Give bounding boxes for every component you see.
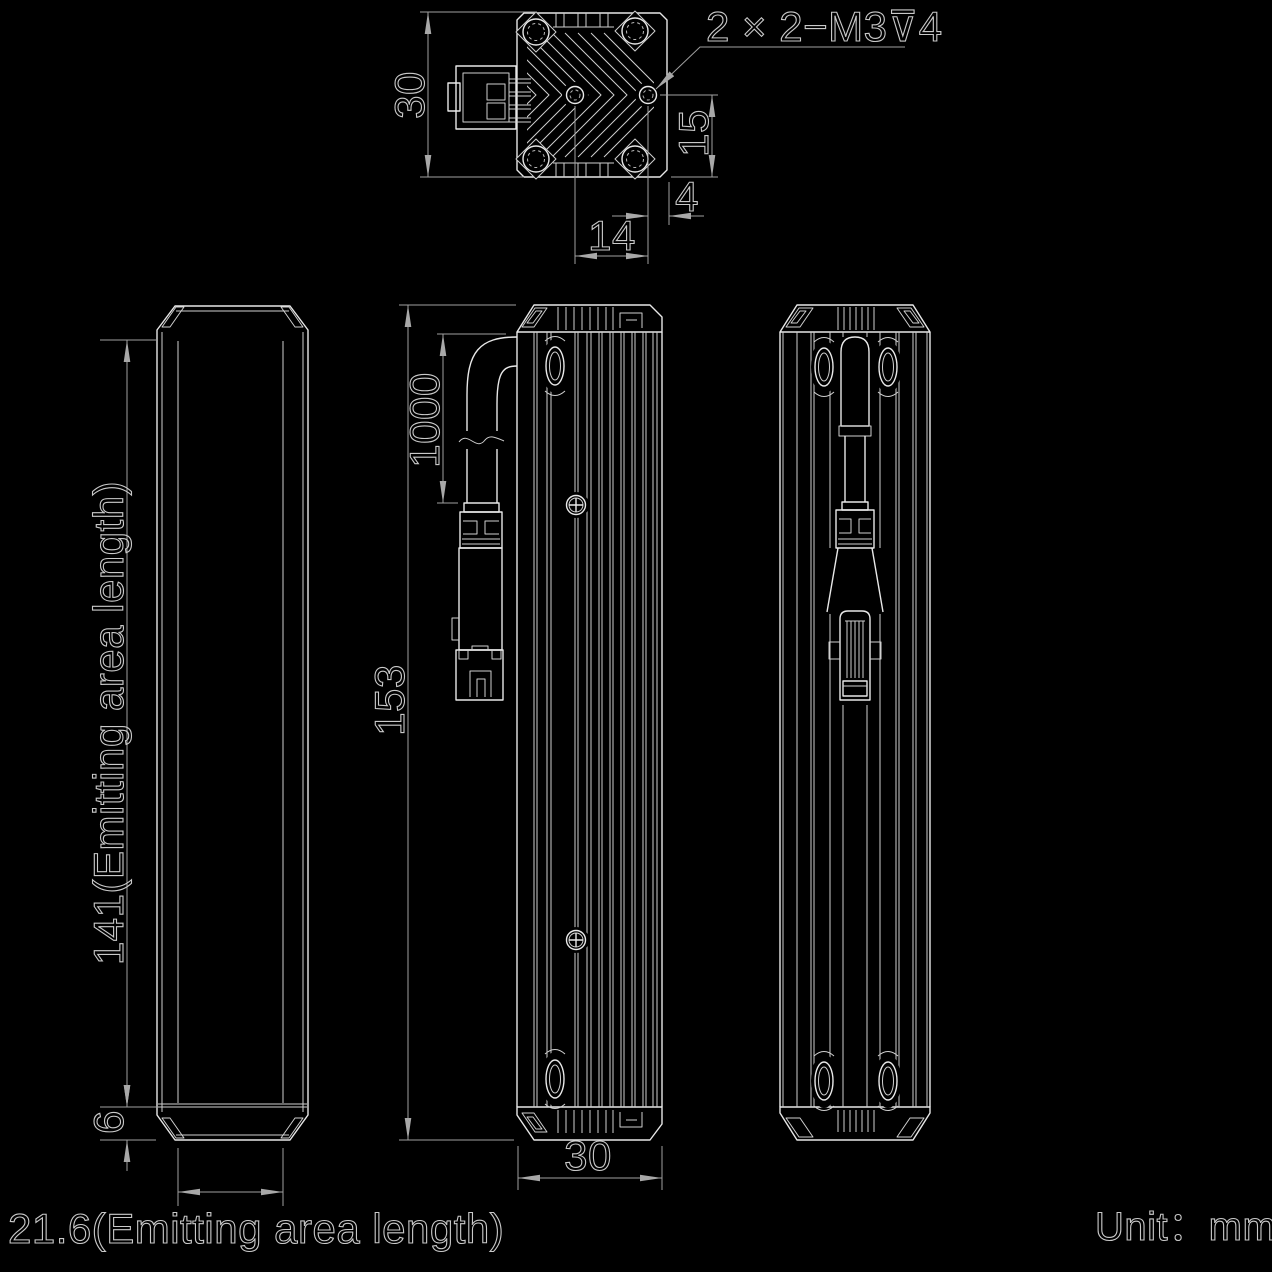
dim-text-emitting-width: 21.6(Emitting area length)	[8, 1205, 504, 1252]
dim-text-hole-spacing: 14	[588, 212, 636, 259]
dim-text-body-length: 153	[366, 664, 413, 736]
dim-emitting-length: 141(Emitting area length)	[85, 340, 156, 1140]
side-slot-hole-top	[542, 337, 568, 396]
dimension-drawing-canvas: 30 15 4 14 2 × 2−M3⊽4	[0, 0, 1272, 1272]
back-top-cap	[780, 305, 930, 332]
side-slot-hole-bottom	[542, 1050, 568, 1109]
dim-text-body-width: 30	[564, 1132, 612, 1179]
dim-text-emitting-length: 141(Emitting area length)	[85, 481, 132, 965]
bottom-edge-fins	[553, 163, 614, 177]
front-chamfer-tr	[281, 307, 303, 327]
side-top-cap-fins	[558, 307, 613, 330]
thread-note-text: 2 × 2−M3⊽4	[706, 3, 943, 50]
emitting-window-edges	[178, 341, 283, 1103]
cable-break-symbol	[459, 437, 504, 444]
thread-note: 2 × 2−M3⊽4	[656, 3, 943, 89]
back-top-cap-fins	[838, 307, 874, 330]
dim-top-height: 30	[386, 12, 537, 177]
dim-cable-length: 1000	[401, 334, 506, 503]
side-bottom-cap-fins	[558, 1110, 613, 1133]
front-body-outline	[157, 306, 308, 1140]
back-bottom-cap	[780, 1107, 930, 1140]
dim-hole-spacing: 14	[575, 106, 648, 264]
back-cable-assembly	[827, 337, 883, 705]
back-top-cap-slot-left	[786, 308, 813, 327]
front-endcap-line	[158, 1104, 307, 1107]
cable	[459, 337, 517, 503]
side-screw-bottom	[563, 927, 589, 953]
top-edge-fins	[553, 13, 614, 27]
side-screw-top	[563, 492, 589, 518]
dim-end-margin: 6	[85, 1076, 132, 1171]
side-extrusion-fins	[534, 332, 657, 1107]
front-edge-inner-lines	[162, 311, 303, 1135]
dim-text-end-margin: 6	[85, 1110, 132, 1134]
unit-note: Unit：mm	[1095, 1205, 1272, 1249]
back-bottom-cap-fins	[838, 1110, 874, 1132]
top-view-connector	[448, 66, 531, 129]
technical-drawing-page: 30 15 4 14 2 × 2−M3⊽4	[0, 0, 1272, 1272]
side-body-edges	[517, 332, 662, 1107]
cable-connector	[452, 503, 503, 700]
dim-text-hole-offset: 15	[670, 109, 717, 157]
back-bottom-cap-slots	[786, 1118, 924, 1137]
view-side: 1000 153 30	[366, 305, 662, 1190]
view-back	[780, 305, 930, 1140]
dim-hole-offset: 15	[660, 95, 718, 177]
dim-text-top-height: 30	[386, 71, 433, 119]
view-top-section: 30 15 4 14 2 × 2−M3⊽4	[386, 3, 943, 264]
dim-text-edge-offset: 4	[675, 173, 699, 220]
side-top-cap-bracket	[620, 313, 642, 328]
side-bottom-cap-bracket	[620, 1112, 642, 1127]
dim-emitting-width: 21.6(Emitting area length)	[8, 1148, 504, 1252]
m3-tapped-holes	[562, 82, 661, 108]
front-chamfer-tl	[162, 307, 184, 327]
back-top-cap-slot-right	[897, 308, 924, 327]
side-bottom-cap-slot	[522, 1113, 547, 1132]
